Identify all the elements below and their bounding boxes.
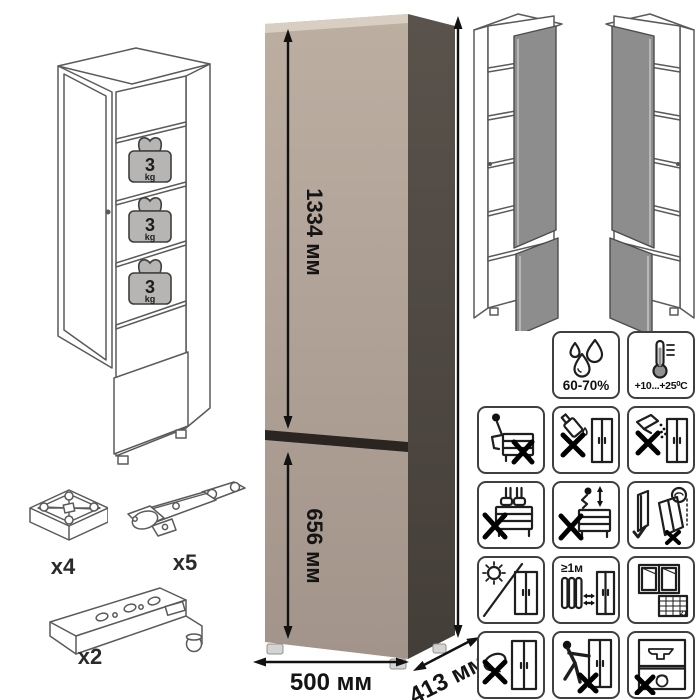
calendar-day-label: 21 <box>680 610 688 617</box>
foot-left <box>118 456 128 464</box>
handle-dot <box>488 162 492 166</box>
min-distance-label: ≥1м <box>561 561 583 575</box>
hinge-variants-wireframe <box>468 2 700 338</box>
water-drops-icon <box>562 338 610 378</box>
grid-spacer <box>477 331 545 399</box>
hinge-qty-label: x5 <box>155 550 215 576</box>
foot-right <box>176 430 186 438</box>
hinge-variant-left <box>474 14 562 336</box>
care-icon-grid: 60-70% +10...+25⁰C <box>477 331 695 699</box>
no-standing-icon <box>477 481 545 549</box>
foot-icon <box>22 478 108 552</box>
no-liquids-icon <box>552 406 620 474</box>
temperature-label: +10...+25⁰C <box>635 381 688 392</box>
no-dragging-icon <box>552 631 620 699</box>
humidity-label: 60-70% <box>563 379 610 393</box>
heat-source-distance-icon: ≥1м <box>552 556 620 624</box>
tip-over-warning-icon <box>627 481 695 549</box>
cabinet-side <box>408 14 455 659</box>
no-direct-sunlight-icon <box>477 556 545 624</box>
dimension-upper-door-label: 1334 мм <box>302 188 327 276</box>
room-ventilation-icon: 21 <box>627 556 695 624</box>
dimension-lower-door-label: 656 мм <box>302 508 327 583</box>
plinth-rail-icon <box>42 578 214 690</box>
weight-unit: kg <box>145 172 156 182</box>
hinge-variant-right <box>606 14 694 336</box>
upper-door-gray <box>514 26 556 248</box>
no-sitting-icon <box>477 406 545 474</box>
no-abrasive-cleaning-icon <box>477 631 545 699</box>
feet-qty-label: x4 <box>33 554 93 580</box>
exploded-cabinet-wireframe: 3 kg 3 kg 3 kg <box>18 4 248 472</box>
open-door-wireframe <box>58 66 112 368</box>
weight-unit: kg <box>145 294 156 304</box>
no-heavy-objects-icon <box>627 631 695 699</box>
weight-unit: kg <box>145 232 156 242</box>
cabinet-side-panel <box>186 64 210 428</box>
humidity-icon: 60-70% <box>552 331 620 399</box>
rail-qty-label: x2 <box>60 644 120 670</box>
door-handle-dot <box>106 210 110 214</box>
temperature-icon: +10...+25⁰C <box>627 331 695 399</box>
cabinet-render: 1334 мм 656 мм 2052 мм 500 мм 413 мм <box>237 0 493 700</box>
thermometer-icon <box>639 338 683 380</box>
lower-door-gray <box>516 238 558 336</box>
no-powder-spill-icon <box>627 406 695 474</box>
hinge-icon <box>112 476 248 560</box>
no-jumping-icon <box>552 481 620 549</box>
instruction-sheet: 3 kg 3 kg 3 kg x4 <box>0 0 700 700</box>
dimension-width-label: 500 мм <box>290 669 372 696</box>
cabinet-front <box>265 14 408 659</box>
